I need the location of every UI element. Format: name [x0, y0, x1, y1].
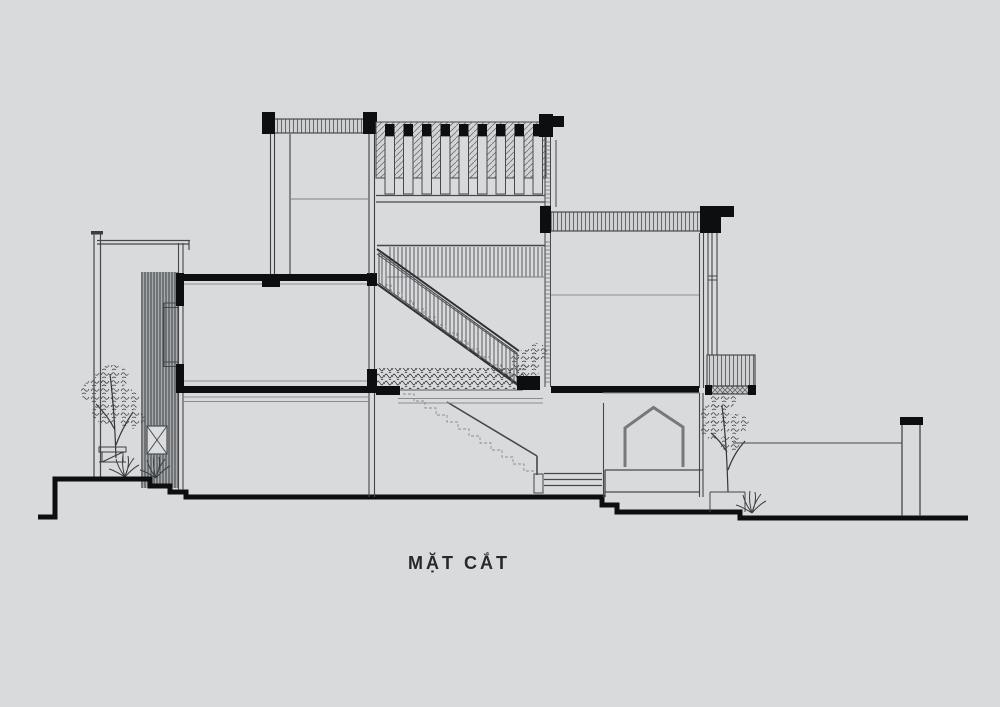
left-courtyard	[81, 231, 190, 488]
tree-right	[701, 391, 749, 492]
stair-tower	[262, 112, 377, 274]
pergola-roof	[376, 114, 564, 202]
left-building	[164, 243, 377, 497]
right-yard	[701, 391, 923, 516]
drawing-title: MẶT CẮT	[408, 553, 510, 574]
section-drawing	[0, 0, 1000, 707]
planter-stand	[99, 447, 126, 462]
architectural-section-sheet: MẶT CẮT	[0, 0, 1000, 707]
tree-left	[81, 365, 145, 458]
right-building	[540, 206, 756, 497]
arched-niche	[625, 408, 683, 468]
